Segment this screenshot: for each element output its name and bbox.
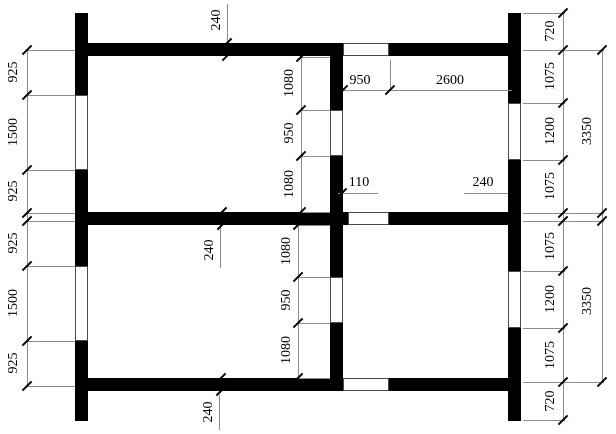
dim-label-center-bottom-3: 1080 xyxy=(280,336,294,364)
dim-line xyxy=(563,13,564,420)
dim-label-left-6: 925 xyxy=(7,353,21,374)
dim-label-right-4: 1075 xyxy=(544,172,558,200)
extension-line xyxy=(27,95,75,96)
opening-top-wall xyxy=(343,43,389,56)
dim-label-offset-240: 240 xyxy=(473,176,494,190)
dim-label-room-950: 950 xyxy=(350,74,371,88)
dim-label-left-1: 925 xyxy=(7,62,21,83)
extension-line xyxy=(298,225,330,226)
dim-label-thickness-bottom: 240 xyxy=(202,402,216,423)
dim-label-right-6: 1200 xyxy=(544,285,558,313)
dim-label-right-7: 1075 xyxy=(544,341,558,369)
dim-label-center-top-1: 1080 xyxy=(283,69,297,97)
wall-right xyxy=(508,13,521,421)
dim-line xyxy=(338,193,378,194)
dim-label-center-bottom-1: 1080 xyxy=(280,237,294,265)
extension-line xyxy=(227,4,228,43)
floor-plan-canvas: 925 1500 925 925 1500 925 1080 950 1080 … xyxy=(0,0,616,434)
dim-label-thickness-middle: 240 xyxy=(203,240,217,261)
dim-label-right-3: 1200 xyxy=(544,117,558,145)
dim-label-right-1: 720 xyxy=(544,21,558,42)
dim-label-center-top-2: 950 xyxy=(283,123,297,144)
extension-line xyxy=(27,170,75,171)
dim-label-left-5: 1500 xyxy=(7,289,21,317)
dim-label-center-top-3: 1080 xyxy=(283,170,297,198)
dim-label-left-3: 925 xyxy=(7,181,21,202)
extension-line xyxy=(27,221,75,222)
extension-line xyxy=(523,271,565,272)
extension-line xyxy=(27,386,75,387)
dim-line xyxy=(298,225,299,378)
extension-line xyxy=(219,395,220,430)
dim-label-center-bottom-2: 950 xyxy=(280,290,294,311)
dim-line xyxy=(301,57,302,212)
window-left-upper xyxy=(75,95,88,170)
extension-line xyxy=(298,277,330,278)
dim-label-total-top: 3350 xyxy=(581,117,595,145)
extension-line xyxy=(523,420,565,421)
extension-line xyxy=(27,50,75,51)
opening-middle-wall xyxy=(348,212,389,225)
dim-label-offset-110: 110 xyxy=(349,176,369,190)
dim-label-thickness-top: 240 xyxy=(210,10,224,31)
extension-line xyxy=(523,13,565,14)
extension-line xyxy=(523,328,565,329)
extension-line xyxy=(27,341,75,342)
dim-label-left-2: 1500 xyxy=(7,118,21,146)
dim-label-right-2: 1075 xyxy=(544,62,558,90)
extension-line xyxy=(298,378,330,379)
window-right-lower xyxy=(508,271,521,328)
extension-line xyxy=(27,266,75,267)
extension-line xyxy=(523,103,565,104)
extension-line xyxy=(390,60,391,90)
dim-label-room-2600: 2600 xyxy=(436,74,464,88)
extension-line xyxy=(298,323,330,324)
window-left-lower xyxy=(75,266,88,341)
extension-line xyxy=(301,212,330,213)
wall-bottom xyxy=(88,378,508,391)
extension-line xyxy=(301,110,330,111)
opening-bottom-wall xyxy=(343,378,389,391)
extension-line xyxy=(220,228,221,268)
extension-line xyxy=(301,156,330,157)
dim-label-right-5: 1075 xyxy=(544,232,558,260)
window-right-upper xyxy=(508,103,521,160)
dim-label-right-8: 720 xyxy=(544,391,558,412)
door-middle-vertical-upper xyxy=(330,110,343,156)
dim-label-left-4: 925 xyxy=(7,233,21,254)
wall-top xyxy=(88,43,508,56)
extension-line xyxy=(27,213,75,214)
extension-line xyxy=(523,160,565,161)
dim-label-total-bottom: 3350 xyxy=(581,287,595,315)
extension-line xyxy=(301,57,330,58)
dim-line xyxy=(343,90,514,91)
dim-line xyxy=(464,193,508,194)
wall-left xyxy=(75,13,88,421)
door-middle-vertical-lower xyxy=(330,277,343,323)
dim-line xyxy=(602,50,603,382)
